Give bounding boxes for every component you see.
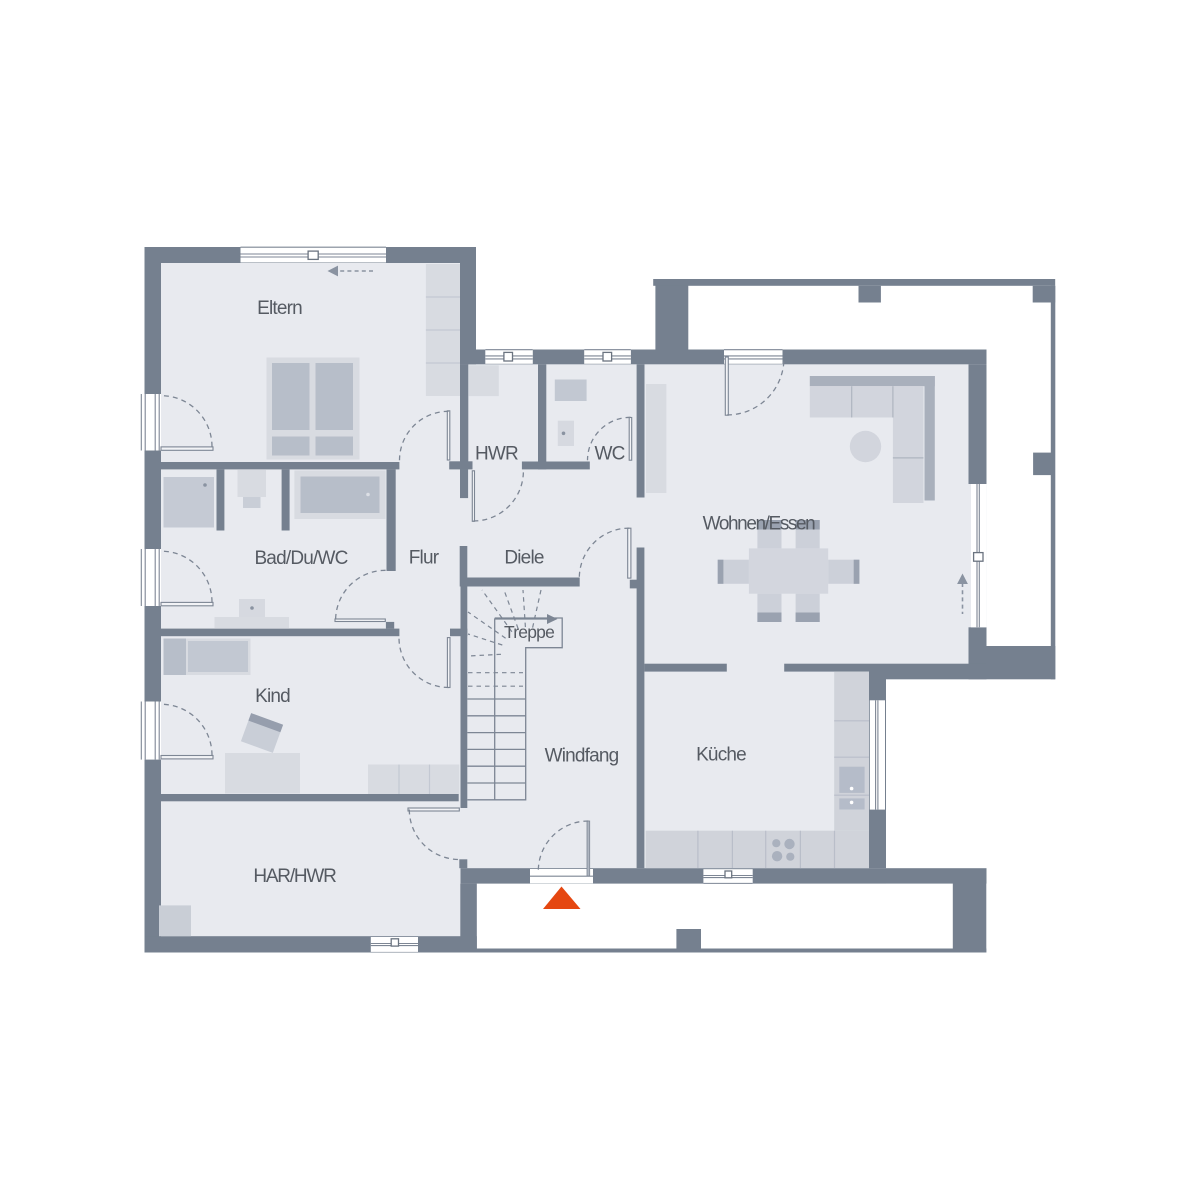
svg-text:Diele: Diele <box>504 548 544 569</box>
svg-text:Flur: Flur <box>409 548 440 569</box>
svg-text:Küche: Küche <box>696 744 746 765</box>
svg-text:HAR/HWR: HAR/HWR <box>253 866 336 887</box>
svg-text:WC: WC <box>594 444 624 465</box>
svg-text:Treppe: Treppe <box>504 622 554 642</box>
svg-text:Bad/Du/WC: Bad/Du/WC <box>254 548 347 569</box>
svg-text:Windfang: Windfang <box>545 746 619 767</box>
svg-text:Kind: Kind <box>255 686 290 707</box>
svg-text:HWR: HWR <box>475 444 518 465</box>
svg-text:Eltern: Eltern <box>257 298 302 319</box>
svg-text:Wohnen/Essen: Wohnen/Essen <box>703 514 816 535</box>
